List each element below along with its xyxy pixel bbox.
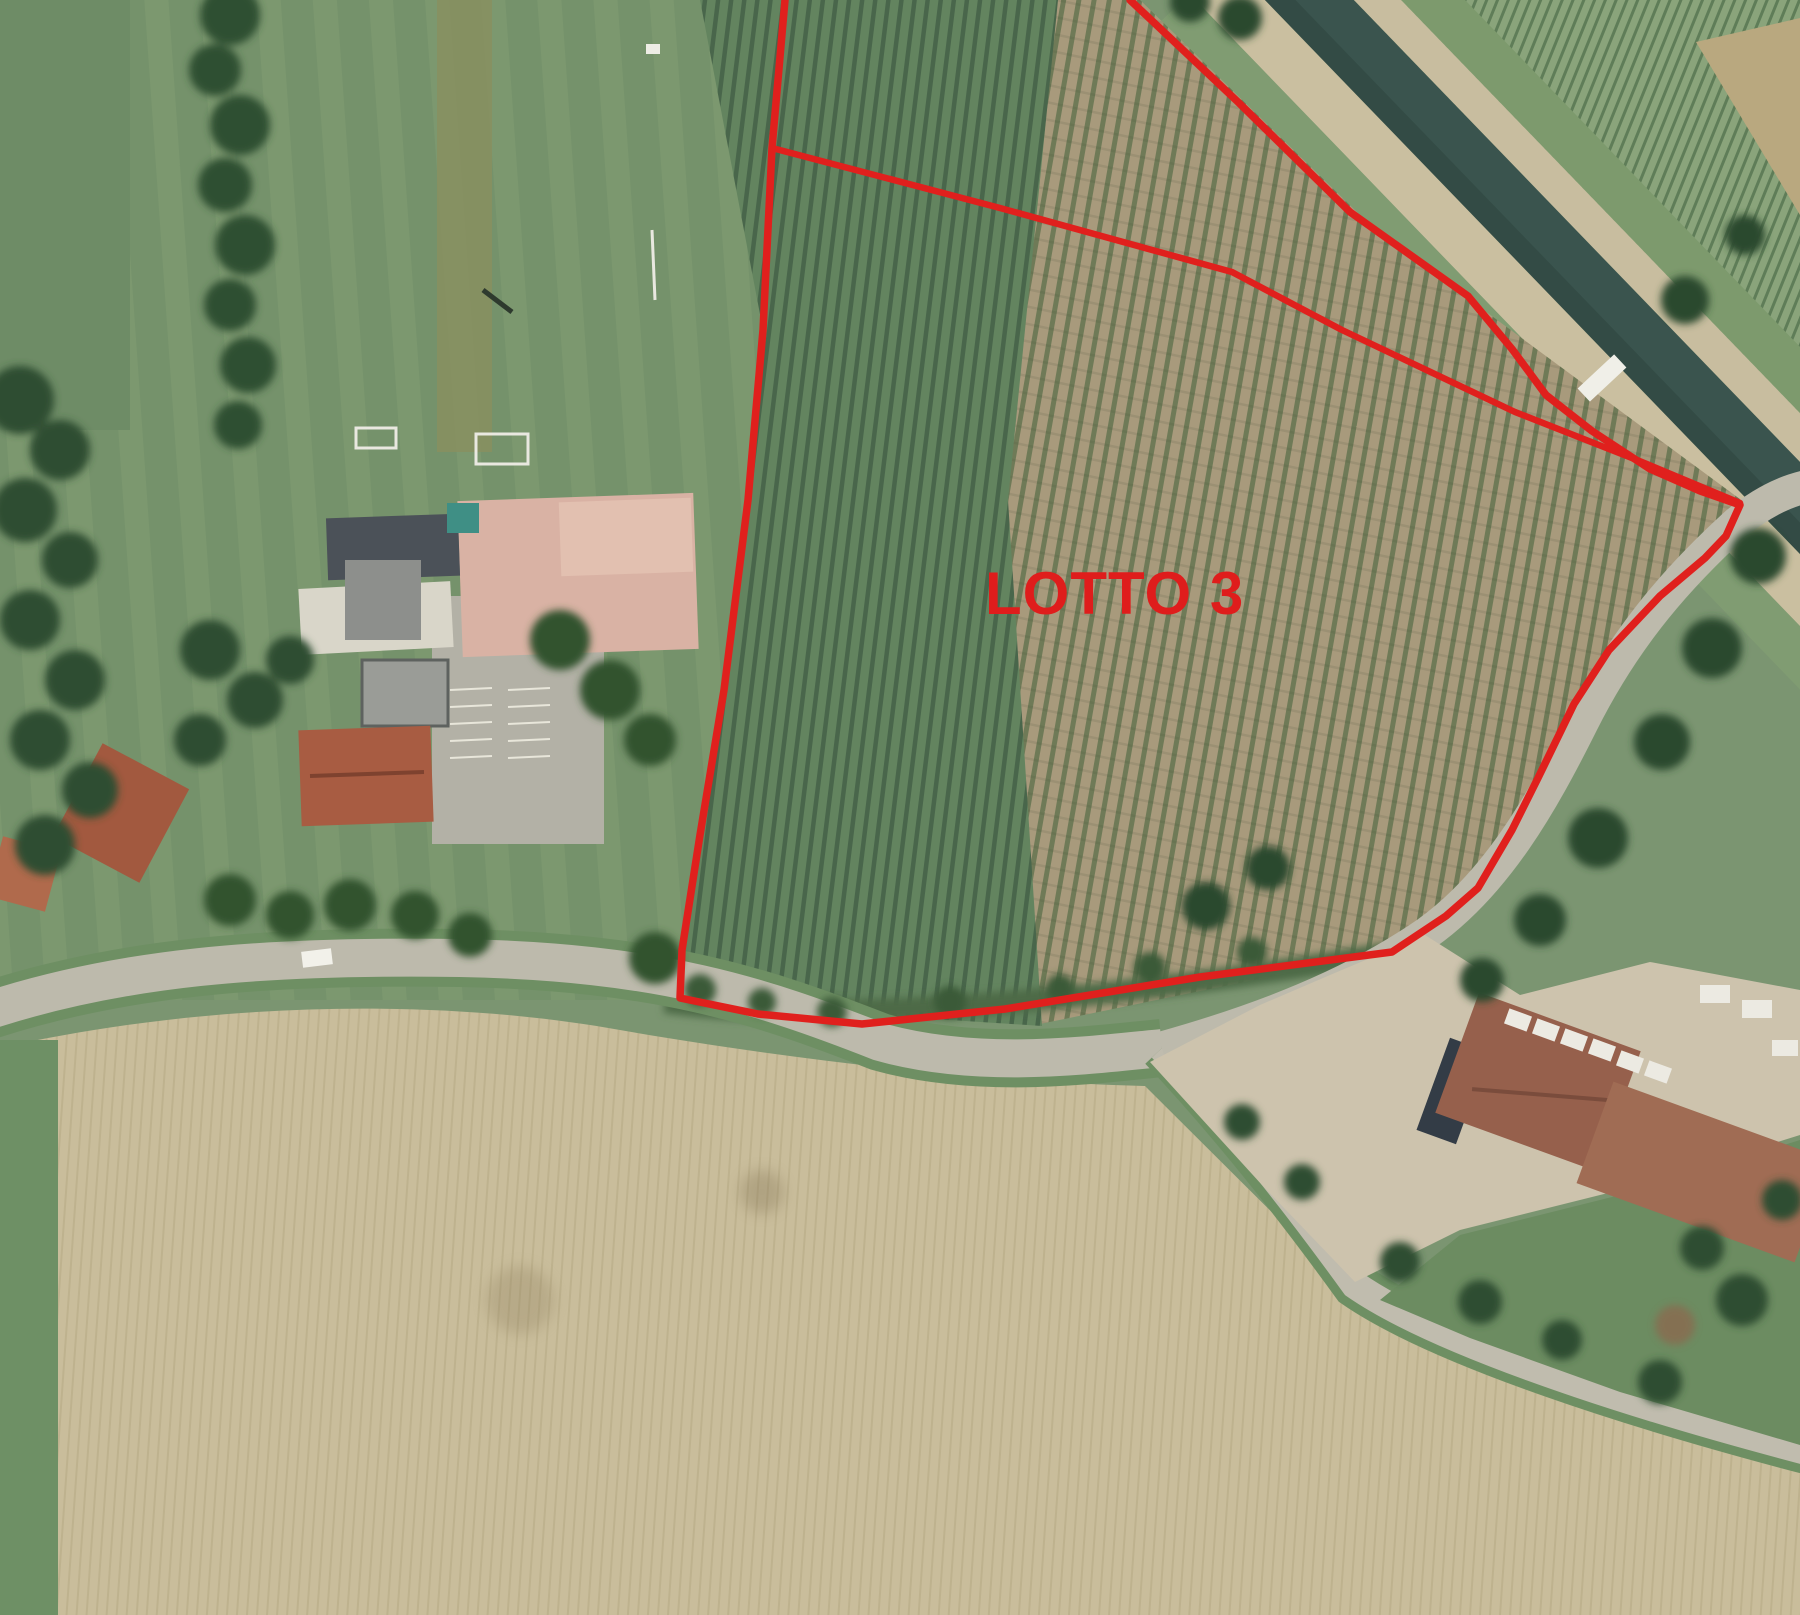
aerial-orthophoto: LOTTO 3 — [0, 0, 1800, 1615]
dirt-patch — [1655, 1305, 1695, 1345]
olive-field-strip — [437, 0, 492, 452]
map-canvas: LOTTO 3 — [0, 0, 1800, 1615]
gray-annex — [345, 560, 421, 640]
left-meadow — [0, 0, 130, 430]
pink-roof-light-slope — [559, 498, 694, 577]
parcel-label: LOTTO 3 — [985, 560, 1244, 627]
field-blemish — [486, 1266, 554, 1334]
carport — [362, 660, 448, 726]
green-margin-strip — [0, 1040, 58, 1615]
floodlight-base — [646, 44, 660, 54]
field-blemish — [740, 1170, 784, 1214]
pool — [447, 503, 479, 533]
